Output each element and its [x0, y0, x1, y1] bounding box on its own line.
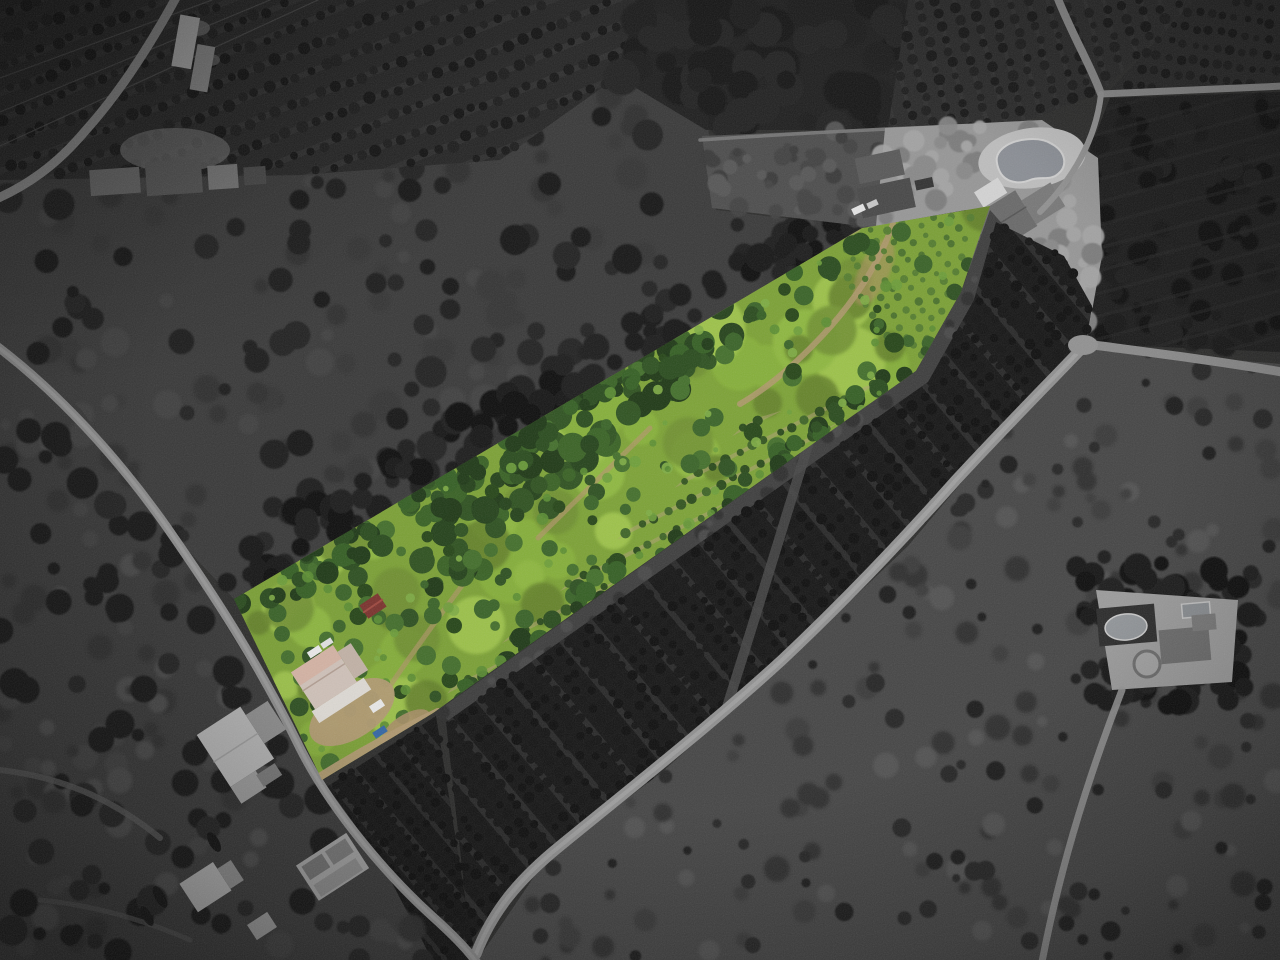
aerial-photo-canvas [0, 0, 1280, 960]
terrain-feature [0, 0, 1280, 960]
aerial-photo [0, 0, 1280, 960]
